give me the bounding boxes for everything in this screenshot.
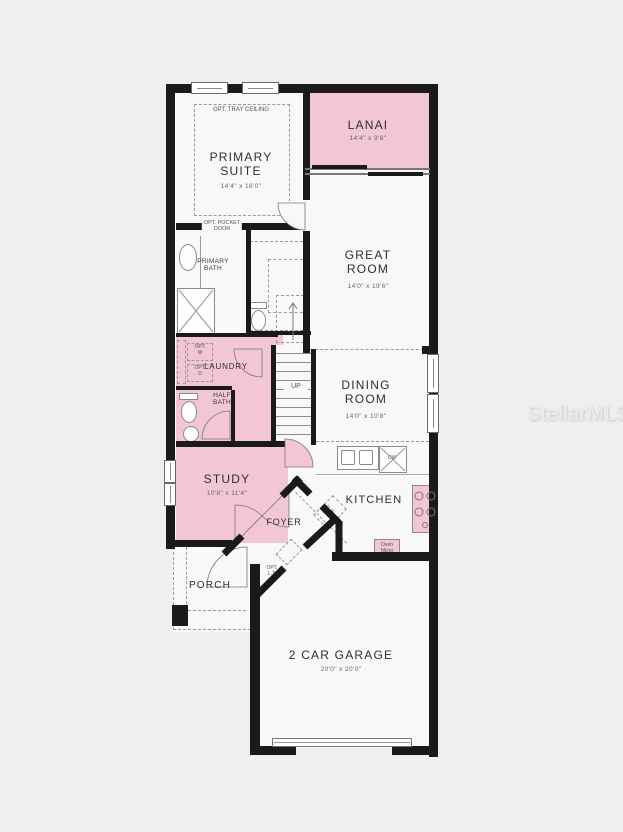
halfbath-sink-icon (183, 426, 199, 442)
wall-stairs-left (271, 345, 276, 443)
slider-panel-left (312, 165, 367, 169)
dishwasher-label: DW (387, 456, 397, 462)
dining-room-label: DINING ROOM (341, 378, 390, 406)
porch-inner-line2 (188, 610, 246, 612)
stairs (276, 345, 316, 443)
wall-kitchen-bottom (332, 552, 438, 561)
window-suite-1 (191, 82, 228, 94)
kitchen-counter-edge (316, 474, 429, 475)
kitchen-label: KITCHEN (346, 494, 403, 507)
garage-dims: 20'0" x 20'0" (321, 666, 362, 673)
wall-garage-bottom-left (250, 746, 296, 755)
window-dining-2 (427, 394, 439, 433)
window-suite-2 (242, 82, 279, 94)
primary-bath-label: PRIMARY BATH (197, 258, 229, 273)
opt-lt-label: OPT. L.T. (262, 566, 282, 577)
window-study-1 (164, 460, 176, 483)
toilet-tank-icon (249, 302, 267, 309)
wall-jog-dining (422, 346, 430, 354)
garage-label: 2 CAR GARAGE (289, 648, 393, 662)
bath-sink-icon (179, 244, 197, 271)
pocket-door-label: OPT. POCKET DOOR (202, 220, 242, 232)
window-dining-1 (427, 354, 439, 393)
up-label: UP (284, 383, 308, 391)
wall-halfbath-hall (231, 390, 235, 443)
kitchen-sink-right-icon (359, 450, 373, 465)
primary-suite-label: PRIMARY SUITE (210, 150, 273, 178)
primary-suite-dims: 14'4" x 16'0" (221, 183, 262, 190)
opt-washer-label: OPT. W (188, 345, 212, 356)
laundry-label: LAUNDRY (204, 362, 248, 371)
wall-bath-closet (246, 230, 251, 335)
garage-door-line (274, 742, 410, 743)
lanai-label: LANAI (348, 118, 389, 132)
wall-top-right (303, 84, 438, 93)
wall-laundry-halfbath (176, 386, 232, 390)
foyer-label: FOYER (266, 517, 301, 527)
dining-room-dims: 14'0" x 10'8" (346, 413, 387, 420)
porch-post (172, 605, 188, 626)
great-room-dims: 14'0" x 19'6" (348, 283, 389, 290)
suite-door-opening (303, 200, 310, 231)
wall-garage-left (250, 564, 260, 755)
window-study-2 (164, 483, 176, 506)
porch-label: PORCH (189, 580, 231, 591)
wall-garage-bottom-right (392, 746, 438, 755)
study-dims: 10'8" x 11'4" (207, 490, 247, 497)
watermark: StellarMLS (527, 403, 623, 426)
shower-icon (177, 288, 215, 334)
porch-inner-line (186, 547, 188, 609)
halfbath-toilet-tank-icon (179, 393, 198, 400)
great-room-label: GREAT ROOM (345, 248, 391, 276)
wall-bath-laundry (176, 333, 278, 337)
great-dining-break (305, 349, 429, 351)
slider-panel-right (368, 172, 423, 176)
half-bath-label: HALF BATH (213, 392, 231, 407)
wall-study-bottom (170, 540, 232, 547)
wall-stairs-right (311, 349, 316, 445)
floor-plan: DW Oven Micro OPT. W OPT. D OPT. W OPT. … (0, 0, 623, 832)
toilet-bowl-icon (251, 310, 266, 331)
halfbath-toilet-bowl-icon (181, 401, 197, 423)
lanai-dims: 14'4" x 9'8" (350, 135, 387, 142)
tray-ceiling-label: OPT. TRAY CEILING (210, 107, 272, 114)
kitchen-sink-left-icon (341, 450, 355, 465)
dining-kitchen-break (316, 441, 429, 443)
washer-dryer-strip (177, 340, 186, 384)
wall-top-left (166, 84, 313, 93)
study-label: STUDY (204, 472, 251, 486)
wall-hall-study (176, 441, 286, 447)
